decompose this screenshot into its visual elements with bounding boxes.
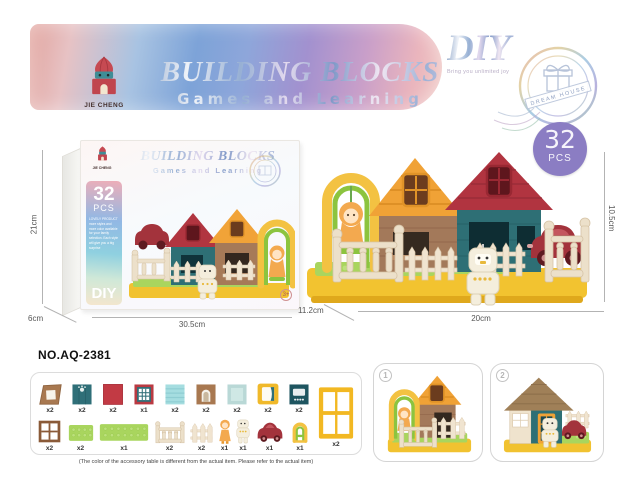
model-number: NO.AQ-2381 xyxy=(38,348,111,362)
product-height-label: 10.5cm xyxy=(607,205,616,231)
holographic-banner: JIE CHENG BUILDING BLOCKS Games and Lear… xyxy=(30,24,442,110)
box-height-label: 21cm xyxy=(29,215,38,235)
box-diy-label: DIY xyxy=(86,285,122,302)
yellow-window-icon xyxy=(317,385,355,441)
arch-window-panel-icon xyxy=(193,381,219,407)
view-2-illustration xyxy=(495,368,600,458)
teal-window-panel-icon xyxy=(286,381,312,407)
accessory-orange-figure: x1 xyxy=(218,418,232,453)
accessory-red-panel: x2 xyxy=(100,381,126,415)
accessory-yellow-window: x2 xyxy=(315,376,357,452)
box-height-line xyxy=(42,150,43,304)
product-width-line xyxy=(358,311,604,312)
accessory-table-caption: (The color of the accessory table is dif… xyxy=(30,459,362,465)
swing-frame-icon xyxy=(288,418,312,445)
banner-subtitle: Games and Learning xyxy=(145,92,455,107)
accessory-green-plate-small: x2 xyxy=(67,418,95,453)
accessory-pale-teal-panel: x2 xyxy=(224,381,250,415)
product-width-label: 20cm xyxy=(358,314,604,323)
accessory-teal-plank-panel: x2 xyxy=(69,381,95,415)
view-panel-1: 1 xyxy=(373,363,483,462)
robot-figure-icon xyxy=(235,418,251,445)
accessory-teal-window-panel: x2 xyxy=(286,381,312,415)
view-1-illustration xyxy=(378,368,479,458)
box-width-line xyxy=(92,317,292,318)
accessory-cyan-striped-panel: x2 xyxy=(162,381,188,415)
jiecheng-logo: JIE CHENG xyxy=(76,56,132,109)
box-piece-unit: PCS xyxy=(86,204,122,213)
house-logo-icon xyxy=(84,56,124,96)
green-plate-small-icon xyxy=(67,418,95,445)
logo-text: JIE CHENG xyxy=(76,102,132,109)
product-height-line xyxy=(604,152,605,302)
accessory-green-plate-large: x1 xyxy=(98,418,150,453)
picket-fence-icon xyxy=(189,418,214,445)
red-panel-icon xyxy=(100,381,126,407)
box-depth-label: 6cm xyxy=(28,314,43,323)
accessory-brown-window-frame: x2 xyxy=(36,418,63,453)
product-depth-label: 11.2cm xyxy=(298,306,324,315)
grid-window-panel-icon xyxy=(131,381,157,407)
view-2-number: 2 xyxy=(496,369,509,382)
brown-window-frame-icon xyxy=(36,418,63,445)
box-logo-text: JIE CHENG xyxy=(87,166,117,170)
box-art-illustration xyxy=(123,183,295,305)
accessory-roof-gable-panel: x2 xyxy=(36,381,64,415)
product-box: JIE CHENG BUILDING BLOCKS Games and Lear… xyxy=(60,136,302,318)
accessory-swing-frame: x1 xyxy=(288,418,312,453)
pale-teal-panel-icon xyxy=(224,381,250,407)
box-description: LOVELY PRODUCT more styles and more colo… xyxy=(89,217,119,251)
box-logo: JIE CHENG xyxy=(87,146,117,170)
green-plate-large-icon xyxy=(98,418,150,445)
age-badge: 3+ xyxy=(280,289,292,301)
accessory-grid-window-panel: x1 xyxy=(131,381,157,415)
accessory-table: x2 x2 x2 xyxy=(30,372,362,455)
accessory-row-1: x2 x2 x2 xyxy=(36,376,315,414)
pcs-badge-unit: PCS xyxy=(533,154,587,164)
view-panel-2: 2 xyxy=(490,363,604,462)
house-logo-icon xyxy=(95,146,110,161)
cyan-striped-panel-icon xyxy=(162,381,188,407)
box-width-label: 30.5cm xyxy=(92,320,292,329)
orange-figure-icon xyxy=(218,418,232,445)
roof-gable-panel-icon xyxy=(36,381,64,407)
pcs-badge-count: 32 xyxy=(533,126,587,154)
accessory-row-2: x2 x2 xyxy=(36,414,315,452)
box-stamp-icon xyxy=(247,153,283,189)
pcs-badge: 32 PCS xyxy=(533,122,587,176)
view-1-number: 1 xyxy=(379,369,392,382)
yellow-frame-panel-icon xyxy=(255,381,281,407)
accessory-picket-fence: x2 xyxy=(189,418,214,453)
banner-title: BUILDING BLOCKS xyxy=(135,58,465,87)
teal-plank-panel-icon xyxy=(69,381,95,407)
accessory-robot-figure: x1 xyxy=(235,418,251,453)
accessory-yellow-frame-panel: x2 xyxy=(255,381,281,415)
box-piece-count: 32 xyxy=(86,185,122,204)
red-car-icon xyxy=(255,418,285,445)
accessory-balustrade-fence: x2 xyxy=(154,418,186,453)
balustrade-fence-icon xyxy=(154,418,186,445)
accessory-red-car: x1 xyxy=(255,418,285,453)
box-left-strip: 32 PCS LOVELY PRODUCT more styles and mo… xyxy=(86,181,122,305)
accessory-arch-window-panel: x2 xyxy=(193,381,219,415)
box-front-panel: JIE CHENG BUILDING BLOCKS Games and Lear… xyxy=(80,140,300,310)
box-side-panel xyxy=(62,148,81,316)
